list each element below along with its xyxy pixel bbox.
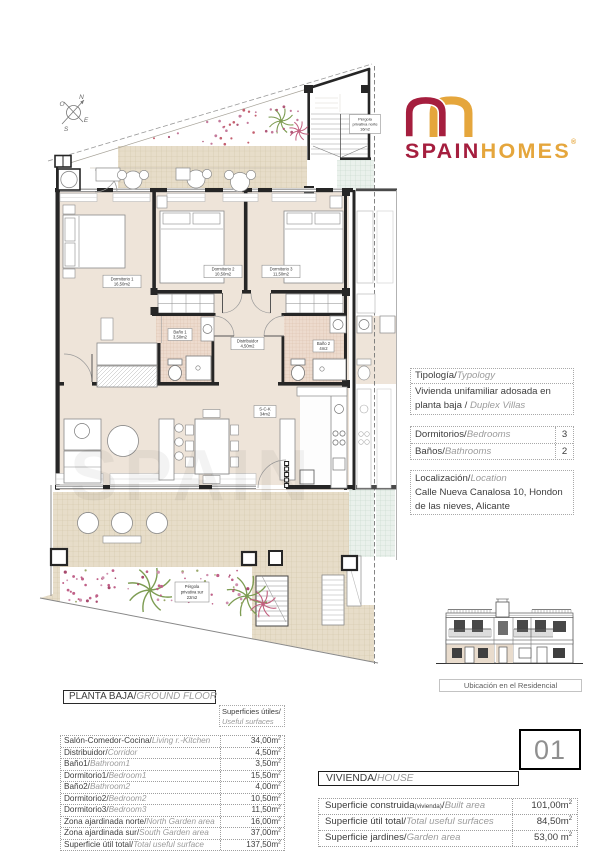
svg-text:3,50m2: 3,50m2 [173, 335, 188, 340]
svg-text:10,50m2: 10,50m2 [215, 272, 232, 277]
svg-text:E: E [84, 117, 89, 124]
svg-text:Baño 2: Baño 2 [317, 341, 331, 346]
svg-text:Dormitorio 2: Dormitorio 2 [212, 266, 235, 271]
svg-text:SPAIN: SPAIN [70, 436, 315, 516]
svg-text:16m2: 16m2 [360, 127, 371, 132]
svg-text:16,50m2: 16,50m2 [114, 282, 131, 287]
svg-text:S: S [64, 126, 69, 133]
svg-text:34m2: 34m2 [260, 412, 271, 417]
svg-text:Distribuidor: Distribuidor [237, 338, 259, 343]
svg-text:22m2: 22m2 [187, 595, 198, 600]
svg-text:Dormitorio 1: Dormitorio 1 [111, 276, 134, 281]
svg-text:O: O [59, 101, 64, 108]
svg-text:4m2: 4m2 [319, 346, 328, 351]
svg-text:N: N [79, 94, 84, 101]
svg-text:Pérgola: Pérgola [185, 584, 200, 589]
svg-text:S-C-K: S-C-K [259, 406, 271, 411]
svg-text:11,50m2: 11,50m2 [273, 272, 290, 277]
svg-text:4,50m2: 4,50m2 [241, 344, 256, 349]
svg-text:privativa sur: privativa sur [181, 590, 204, 595]
svg-text:Baño 1: Baño 1 [173, 329, 187, 334]
svg-text:Dormitorio 3: Dormitorio 3 [270, 266, 293, 271]
